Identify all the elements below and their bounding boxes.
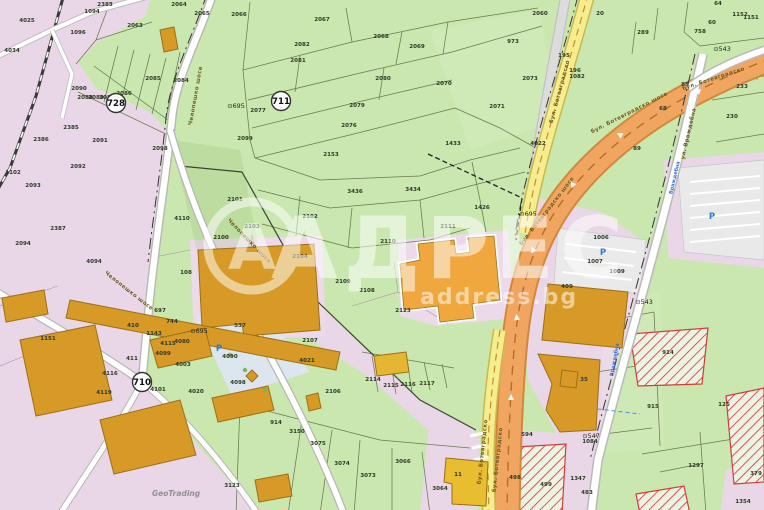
parcel-label: 1082 — [569, 74, 585, 80]
parcel-label: 1102 — [5, 170, 21, 176]
parcel-label: 2084 — [173, 78, 189, 84]
parcel-label: 1094 — [84, 9, 100, 15]
parcel-label: 697 — [154, 308, 166, 314]
parcel-label: 379 — [750, 471, 762, 477]
parking-lot-northeast — [678, 160, 764, 260]
parcel-label: 2100 — [213, 235, 229, 241]
parcel-label: 744 — [166, 319, 178, 325]
parcel-label: 3150 — [289, 429, 305, 435]
parcel-label: 2094 — [15, 241, 31, 247]
survey-marker: ⊙543 — [713, 45, 731, 53]
parcel-label: 2123 — [395, 308, 411, 314]
parcel-label: 915 — [647, 404, 659, 410]
watermark-logo-letter: А — [228, 211, 276, 284]
parcel-label: 2069 — [409, 44, 425, 50]
watermark-brand: АДРЕС — [271, 199, 629, 299]
parcel-label: 537 — [234, 323, 246, 329]
parcel-label: 2153 — [323, 152, 339, 158]
parcel-label: 1347 — [570, 476, 586, 482]
parcel-label: 4020 — [188, 389, 204, 395]
parcel-label: 483 — [581, 490, 593, 496]
parcel-label: 499 — [540, 482, 552, 488]
watermark-domain: address.bg — [420, 285, 578, 310]
parcel-label: 2081 — [290, 58, 306, 64]
parcel-label: 2064 — [171, 2, 187, 8]
road-badge-label: 728 — [107, 99, 125, 109]
parcel-label: 3434 — [405, 187, 421, 193]
watermark: А АДРЕС address.bg — [208, 199, 629, 310]
cadastral-map-viewport[interactable]: 2383206420652066206310944025109640342067… — [0, 0, 764, 510]
parcel-label: 35 — [580, 377, 588, 383]
parcel-label: 2070 — [436, 81, 452, 87]
parcel-label: 2067 — [314, 17, 330, 23]
road-badge-label: 711 — [272, 97, 290, 107]
parcel-label: 2116 — [400, 382, 416, 388]
parcel-label: 4090 — [222, 354, 238, 360]
parcel-label: 125 — [718, 402, 730, 408]
parcel-label: 230 — [726, 114, 738, 120]
parcel-label: 1151 — [40, 336, 56, 342]
parcel-label: 758 — [694, 29, 706, 35]
parcel-label: 410 — [127, 323, 139, 329]
building-small — [306, 393, 321, 411]
parcel-label: 3075 — [310, 441, 326, 447]
parcel-label: 1297 — [688, 463, 704, 469]
parcel-label: 89 — [633, 146, 641, 152]
hatched-parcel — [630, 328, 708, 386]
parcel-label: 2385 — [63, 125, 79, 131]
parcel-label: 498 — [509, 475, 521, 481]
parcel-label: 64 — [714, 1, 722, 7]
parcel-label: 4022 — [530, 141, 546, 147]
parking-icon: P — [216, 344, 222, 354]
parcel-label: 2065 — [194, 11, 210, 17]
parcel-label: 2092 — [70, 164, 86, 170]
parcel-label: 4034 — [4, 48, 20, 54]
parcel-label: 2071 — [489, 104, 505, 110]
parcel-label: 1354 — [735, 499, 751, 505]
building-small — [560, 370, 578, 388]
parcel-label: 2383 — [97, 2, 113, 8]
parcel-label: 108 — [180, 270, 192, 276]
parcel-label: 2114 — [365, 377, 381, 383]
parcel-label: 2080 — [375, 76, 391, 82]
survey-marker: ⊙543 — [635, 298, 653, 306]
parcel-label: 2098 — [152, 146, 168, 152]
parcel-label: 3073 — [360, 473, 376, 479]
parcel-label: 4098 — [230, 380, 246, 386]
cadastral-map[interactable]: 2383206420652066206310944025109640342067… — [0, 0, 764, 510]
road-badge: 710 — [133, 373, 152, 392]
survey-marker: ⊙695 — [227, 102, 245, 110]
road-badge: 711 — [272, 92, 291, 111]
parcel-label: 1143 — [146, 331, 162, 337]
parcel-label: 289 — [637, 30, 649, 36]
parking-icon: P — [709, 212, 715, 222]
parcel-label: 2079 — [349, 103, 365, 109]
parcel-label: 914 — [662, 350, 674, 356]
parcel-label: 4025 — [19, 18, 35, 24]
parcel-label: 2093 — [25, 183, 41, 189]
parcel-label: 3066 — [395, 459, 411, 465]
parcel-label: 2076 — [341, 123, 357, 129]
parcel-label: 914 — [270, 420, 282, 426]
parcel-label: 2082 — [294, 42, 310, 48]
parcel-label: 2085 — [145, 76, 161, 82]
parcel-label: 2115 — [383, 383, 399, 389]
parcel-label: 2063 — [127, 23, 143, 29]
parcel-label: 3074 — [334, 461, 350, 467]
parcel-label: 4003 — [175, 362, 191, 368]
parcel-label: 4116 — [102, 371, 118, 377]
parcel-label: 2386 — [33, 137, 49, 143]
parcel-label: 973 — [507, 39, 519, 45]
parcel-label: 594 — [521, 432, 533, 438]
parcel-label: 1151 — [743, 15, 759, 21]
survey-marker: ⊙547 — [582, 432, 600, 440]
parcel-label: 4094 — [86, 259, 102, 265]
parcel-label: 2066 — [231, 12, 247, 18]
parcel-label: 2107 — [302, 338, 318, 344]
parcel-label: 2387 — [50, 226, 66, 232]
parcel-label: 4110 — [174, 216, 190, 222]
building-yellow — [374, 352, 409, 376]
parcel-label: 2077 — [250, 108, 266, 114]
parcel-label: 2106 — [325, 389, 341, 395]
parcel-label: 4119 — [96, 390, 112, 396]
parcel-label: 2060 — [532, 11, 548, 17]
parcel-label: 1096 — [70, 30, 86, 36]
parcel-label: 4021 — [299, 358, 315, 364]
parcel-label: 3123 — [224, 483, 240, 489]
parcel-label: 4080 — [174, 339, 190, 345]
parcel-label: 2091 — [92, 138, 108, 144]
parcel-label: 195 — [558, 53, 570, 59]
parcel-label: 2099 — [237, 136, 253, 142]
parcel-label: 68 — [659, 106, 667, 112]
parcel-label: 4101 — [150, 387, 166, 393]
survey-marker: ⊙695 — [190, 327, 208, 335]
parcel-label: 11 — [454, 472, 462, 478]
parcel-label: 233 — [736, 84, 748, 90]
parcel-label: 2068 — [373, 34, 389, 40]
parcel-label: 60 — [708, 20, 716, 26]
parcel-label: 4099 — [155, 351, 171, 357]
parcel-label: 2117 — [419, 381, 435, 387]
road-badge: 728 — [107, 94, 126, 113]
map-attribution: GeoTrading — [152, 489, 201, 498]
parcel-label: 3064 — [432, 486, 448, 492]
road-badge-label: 710 — [133, 378, 151, 388]
parcel-label: 3436 — [347, 189, 363, 195]
parcel-label: 2090 — [71, 86, 87, 92]
building-warehouse — [20, 325, 112, 416]
parcel-label: 20 — [596, 11, 604, 17]
parcel-label: 411 — [126, 356, 138, 362]
parcel-label: 2073 — [522, 76, 538, 82]
parcel-label: 1433 — [445, 141, 461, 147]
